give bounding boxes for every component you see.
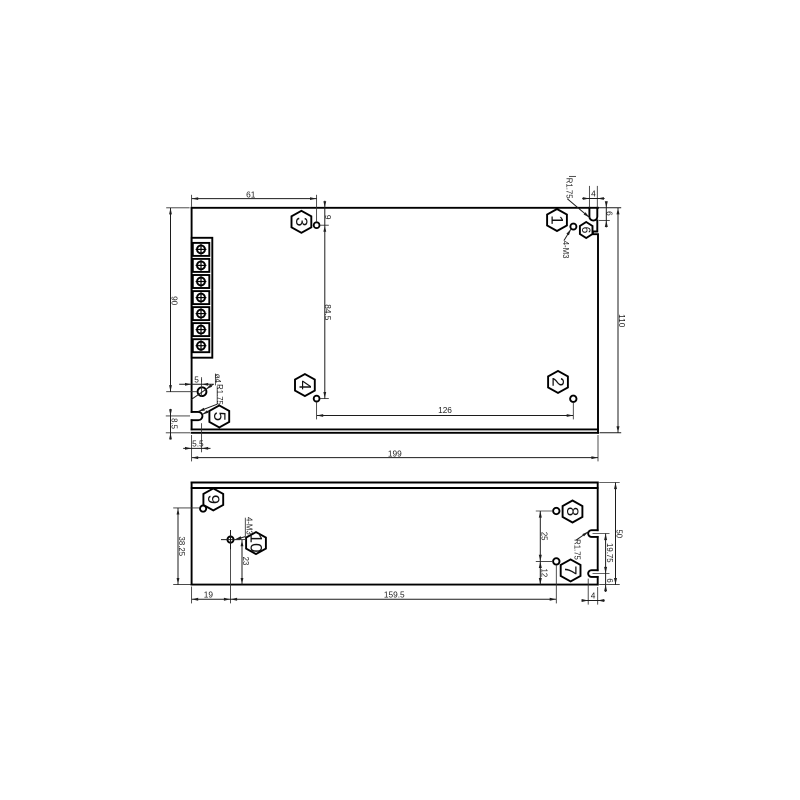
svg-text:4: 4	[295, 380, 314, 389]
svg-text:4-M3: 4-M3	[561, 241, 570, 259]
svg-text:159.5: 159.5	[384, 589, 405, 599]
svg-text:8: 8	[563, 507, 582, 516]
svg-text:9: 9	[323, 215, 333, 220]
svg-text:6: 6	[605, 578, 614, 582]
svg-text:6: 6	[579, 227, 593, 234]
svg-text:R1.75: R1.75	[564, 178, 573, 199]
svg-text:38.25: 38.25	[177, 537, 186, 557]
svg-text:23: 23	[241, 557, 250, 566]
svg-text:5: 5	[210, 412, 229, 421]
svg-text:8.5: 8.5	[169, 418, 178, 430]
svg-text:3: 3	[292, 217, 311, 226]
svg-text:4-M3: 4-M3	[245, 517, 254, 535]
svg-text:4: 4	[591, 591, 596, 601]
svg-text:1: 1	[548, 215, 567, 224]
svg-text:R1.75: R1.75	[573, 539, 582, 560]
svg-text:R1.75: R1.75	[215, 384, 224, 405]
svg-text:7: 7	[561, 566, 580, 575]
svg-text:6: 6	[605, 211, 615, 216]
svg-text:5: 5	[194, 374, 199, 384]
svg-text:126: 126	[438, 405, 452, 415]
svg-text:2: 2	[549, 377, 568, 386]
svg-text:5.5: 5.5	[192, 438, 204, 448]
svg-text:90: 90	[170, 296, 180, 306]
svg-text:50: 50	[615, 529, 624, 538]
svg-text:9: 9	[204, 495, 223, 504]
svg-text:110: 110	[617, 314, 627, 328]
svg-text:4: 4	[591, 189, 596, 199]
svg-text:199: 199	[388, 448, 402, 458]
svg-text:84.5: 84.5	[323, 304, 333, 321]
svg-text:19.75: 19.75	[605, 543, 614, 563]
svg-text:19: 19	[204, 589, 214, 599]
svg-text:12: 12	[539, 569, 548, 578]
svg-text:25: 25	[539, 532, 548, 541]
svg-text:10: 10	[247, 534, 266, 553]
svg-text:ø4: ø4	[213, 374, 222, 384]
svg-text:61: 61	[246, 189, 256, 199]
